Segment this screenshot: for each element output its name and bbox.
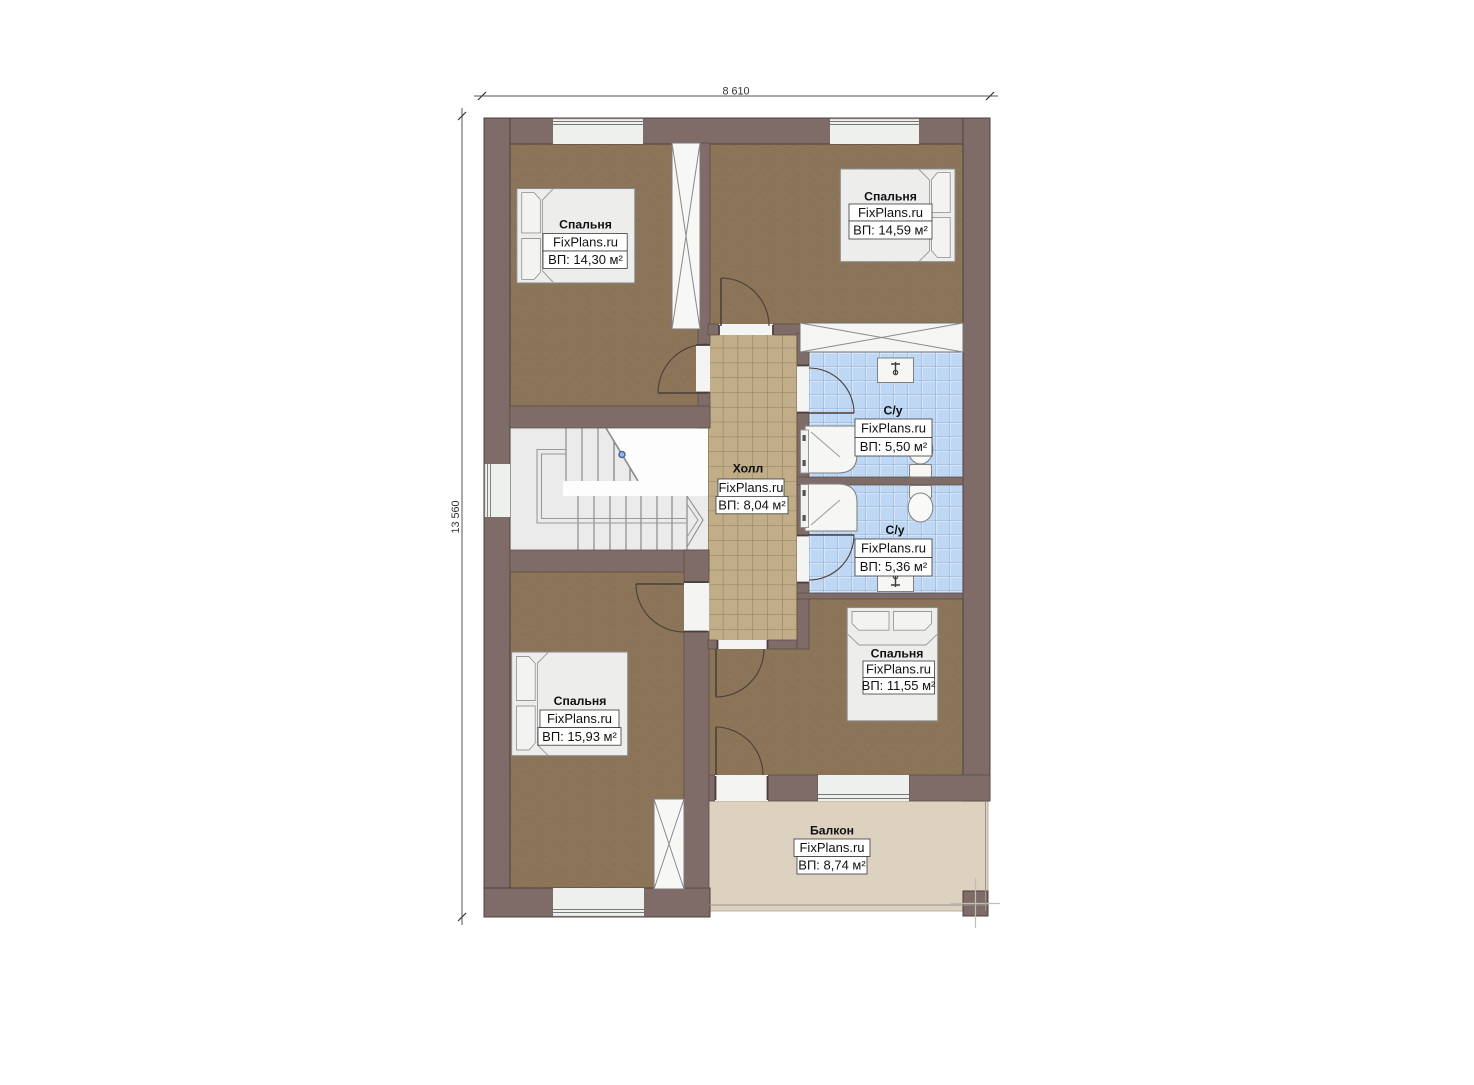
svg-text:С/у: С/у bbox=[884, 404, 903, 418]
svg-text:ВП: 15,93 м²: ВП: 15,93 м² bbox=[542, 729, 617, 744]
svg-text:Спальня: Спальня bbox=[554, 694, 607, 708]
svg-text:ВП: 11,55 м²: ВП: 11,55 м² bbox=[862, 678, 936, 693]
svg-text:С/у: С/у bbox=[886, 523, 905, 537]
svg-text:FixPlans.ru: FixPlans.ru bbox=[718, 480, 783, 495]
svg-text:FixPlans.ru: FixPlans.ru bbox=[866, 662, 931, 677]
svg-text:Спальня: Спальня bbox=[559, 218, 612, 232]
svg-text:FixPlans.ru: FixPlans.ru bbox=[861, 421, 926, 436]
svg-text:FixPlans.ru: FixPlans.ru bbox=[553, 235, 618, 250]
svg-text:FixPlans.ru: FixPlans.ru bbox=[861, 541, 926, 556]
svg-text:Спальня: Спальня bbox=[871, 647, 924, 661]
svg-text:13 560: 13 560 bbox=[450, 500, 462, 533]
svg-text:Балкон: Балкон bbox=[810, 824, 854, 838]
svg-text:FixPlans.ru: FixPlans.ru bbox=[799, 840, 864, 855]
svg-text:ВП: 8,04 м²: ВП: 8,04 м² bbox=[718, 497, 786, 512]
svg-text:Холл: Холл bbox=[733, 462, 764, 476]
svg-text:ВП: 14,59 м²: ВП: 14,59 м² bbox=[853, 222, 928, 237]
svg-text:FixPlans.ru: FixPlans.ru bbox=[547, 711, 612, 726]
svg-text:ВП: 8,74 м²: ВП: 8,74 м² bbox=[798, 858, 866, 873]
svg-text:ВП: 5,50 м²: ВП: 5,50 м² bbox=[860, 439, 928, 454]
svg-text:FixPlans.ru: FixPlans.ru bbox=[858, 205, 923, 220]
svg-text:ВП: 14,30 м²: ВП: 14,30 м² bbox=[548, 252, 623, 267]
svg-text:Спальня: Спальня bbox=[864, 190, 917, 204]
svg-text:8 610: 8 610 bbox=[722, 86, 749, 98]
svg-text:ВП: 5,36 м²: ВП: 5,36 м² bbox=[860, 559, 928, 574]
